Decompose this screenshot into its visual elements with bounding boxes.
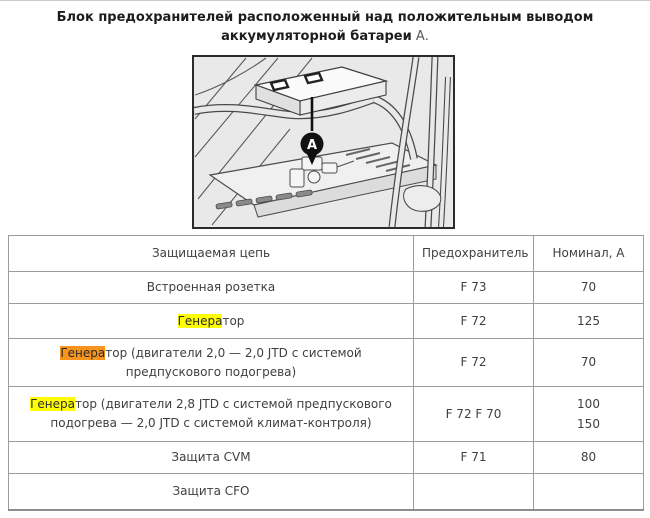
table-row: Защита CVM F 71 80 xyxy=(9,442,644,474)
fuse-cell: F 72 xyxy=(414,339,534,387)
callout-a-label: A xyxy=(307,138,317,153)
fuse-cell: F 71 xyxy=(414,442,534,474)
search-highlight-active: Генера xyxy=(60,346,105,360)
battery-reference-letter: А. xyxy=(412,29,429,44)
table-row: Встроенная розетка F 73 70 xyxy=(9,272,644,304)
table-row: Генератор (двигатели 2,8 JTD с системой … xyxy=(9,387,644,442)
rating-cell: 100150 xyxy=(534,387,644,442)
fuse-cell: F 72 F 70 xyxy=(414,387,534,442)
page-title-line1: Блок предохранителей расположенный над п… xyxy=(0,8,650,27)
fuse-cell: F 73 xyxy=(414,272,534,304)
fuse-cell xyxy=(414,474,534,510)
battery-fusebox-drawing: A xyxy=(194,57,453,227)
column-header-fuse: Предохранитель xyxy=(414,236,534,272)
rating-cell xyxy=(534,474,644,510)
circuit-cell: Генератор xyxy=(9,304,414,339)
circuit-cell: Встроенная розетка xyxy=(9,272,414,304)
table-row: Генератор (двигатели 2,0 — 2,0 JTD с сис… xyxy=(9,339,644,387)
circuit-cell: Защита CFO xyxy=(9,474,414,510)
rating-cell: 125 xyxy=(534,304,644,339)
fuse-box-window xyxy=(271,80,288,90)
battery-illustration: A xyxy=(192,55,455,229)
table-row: Генератор F 72 125 xyxy=(9,304,644,339)
table-header-row: Защищаемая цепь Предохранитель Номинал, … xyxy=(9,236,644,272)
circuit-cell: Генератор (двигатели 2,8 JTD с системой … xyxy=(9,387,414,442)
circuit-cell: Защита CVM xyxy=(9,442,414,474)
table-row: Защита CFO xyxy=(9,474,644,510)
page-title-line2: аккумуляторной батареи А. xyxy=(0,27,650,46)
rating-cell: 70 xyxy=(534,339,644,387)
column-header-rating: Номинал, А xyxy=(534,236,644,272)
fuse-table: Защищаемая цепь Предохранитель Номинал, … xyxy=(8,235,644,511)
fuse-box-window xyxy=(305,73,322,83)
search-highlight: Генера xyxy=(178,314,223,328)
circuit-cell: Генератор (двигатели 2,0 — 2,0 JTD с сис… xyxy=(9,339,414,387)
page-title: Блок предохранителей расположенный над п… xyxy=(0,8,650,46)
rating-cell: 80 xyxy=(534,442,644,474)
search-highlight: Генера xyxy=(30,397,75,411)
fuse-cell: F 72 xyxy=(414,304,534,339)
column-header-circuit: Защищаемая цепь xyxy=(9,236,414,272)
rating-cell: 70 xyxy=(534,272,644,304)
